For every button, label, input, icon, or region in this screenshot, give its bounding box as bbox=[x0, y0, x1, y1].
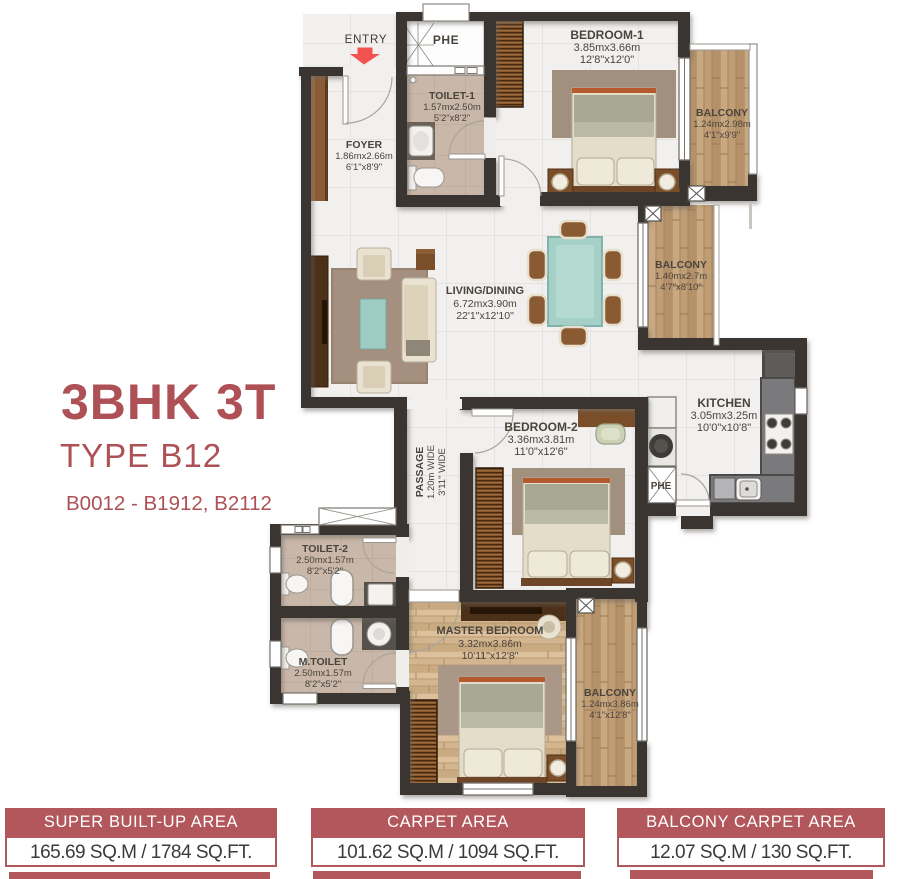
svg-text:10'11"x12'8": 10'11"x12'8" bbox=[462, 650, 519, 662]
svg-text:1.40mx2.7m: 1.40mx2.7m bbox=[655, 271, 707, 282]
svg-text:BEDROOM-1: BEDROOM-1 bbox=[570, 28, 644, 42]
svg-text:3.85mx3.66m: 3.85mx3.66m bbox=[574, 42, 641, 54]
svg-text:BALCONY: BALCONY bbox=[696, 107, 748, 119]
svg-text:4'7"x8'10": 4'7"x8'10" bbox=[660, 282, 702, 293]
svg-text:12'8"x12'0": 12'8"x12'0" bbox=[580, 54, 634, 66]
svg-text:1.20m WIDE: 1.20m WIDE bbox=[426, 445, 437, 499]
svg-text:165.69 SQ.M / 1784 SQ.FT.: 165.69 SQ.M / 1784 SQ.FT. bbox=[30, 842, 252, 863]
svg-text:1.24mx2.98m: 1.24mx2.98m bbox=[693, 119, 751, 130]
svg-text:8'2"x5'2": 8'2"x5'2" bbox=[307, 566, 343, 577]
svg-text:FOYER: FOYER bbox=[346, 139, 383, 151]
svg-text:SUPER BUILT-UP AREA: SUPER BUILT-UP AREA bbox=[44, 813, 238, 831]
svg-text:ENTRY: ENTRY bbox=[345, 34, 388, 46]
svg-text:B0012 - B1912, B2112: B0012 - B1912, B2112 bbox=[66, 492, 272, 515]
svg-text:6'1"x8'9": 6'1"x8'9" bbox=[346, 162, 382, 173]
svg-text:KITCHEN: KITCHEN bbox=[697, 396, 750, 410]
svg-text:4'1"x12'8": 4'1"x12'8" bbox=[589, 710, 631, 721]
svg-text:8'2"x5'2": 8'2"x5'2" bbox=[305, 679, 341, 690]
svg-text:BALCONY: BALCONY bbox=[584, 687, 636, 699]
svg-text:PHE: PHE bbox=[651, 481, 672, 492]
svg-text:PHE: PHE bbox=[433, 33, 459, 47]
svg-text:6.72mx3.90m: 6.72mx3.90m bbox=[453, 298, 517, 310]
svg-text:3.32mx3.86m: 3.32mx3.86m bbox=[458, 638, 522, 650]
svg-text:TYPE B12: TYPE B12 bbox=[60, 437, 222, 474]
svg-text:10'0"x10'8": 10'0"x10'8" bbox=[697, 422, 751, 434]
svg-text:TOILET-1: TOILET-1 bbox=[429, 90, 475, 102]
svg-text:3'11" WIDE: 3'11" WIDE bbox=[437, 448, 448, 496]
svg-text:1.86mx2.66m: 1.86mx2.66m bbox=[335, 151, 393, 162]
svg-text:M.TOILET: M.TOILET bbox=[299, 656, 348, 668]
svg-text:BALCONY CARPET AREA: BALCONY CARPET AREA bbox=[646, 813, 856, 831]
svg-text:2.50mx1.57m: 2.50mx1.57m bbox=[296, 555, 354, 566]
svg-text:LIVING/DINING: LIVING/DINING bbox=[446, 285, 524, 297]
svg-text:3.05mx3.25m: 3.05mx3.25m bbox=[691, 410, 758, 422]
svg-text:1.24mx3.86m: 1.24mx3.86m bbox=[581, 699, 639, 710]
svg-text:3.36mx3.81m: 3.36mx3.81m bbox=[508, 434, 575, 446]
svg-text:5'2"x8'2": 5'2"x8'2" bbox=[434, 113, 470, 124]
svg-text:BEDROOM-2: BEDROOM-2 bbox=[504, 420, 578, 434]
svg-text:1.57mx2.50m: 1.57mx2.50m bbox=[423, 102, 481, 113]
svg-text:2.50mx1.57m: 2.50mx1.57m bbox=[294, 668, 352, 679]
svg-text:22'1"x12'10": 22'1"x12'10" bbox=[456, 310, 514, 322]
svg-text:12.07 SQ.M / 130 SQ.FT.: 12.07 SQ.M / 130 SQ.FT. bbox=[650, 842, 852, 863]
svg-text:TOILET-2: TOILET-2 bbox=[302, 543, 348, 555]
svg-text:MASTER BEDROOM: MASTER BEDROOM bbox=[437, 625, 544, 637]
svg-text:PASSAGE: PASSAGE bbox=[414, 447, 426, 498]
svg-text:CARPET AREA: CARPET AREA bbox=[387, 813, 509, 831]
svg-text:11'0"x12'6": 11'0"x12'6" bbox=[514, 446, 567, 458]
svg-text:BALCONY: BALCONY bbox=[655, 259, 707, 271]
svg-text:101.62 SQ.M / 1094 SQ.FT.: 101.62 SQ.M / 1094 SQ.FT. bbox=[337, 842, 559, 863]
svg-text:3BHK 3T: 3BHK 3T bbox=[61, 374, 276, 430]
svg-text:4'1"x9'9": 4'1"x9'9" bbox=[704, 130, 740, 141]
